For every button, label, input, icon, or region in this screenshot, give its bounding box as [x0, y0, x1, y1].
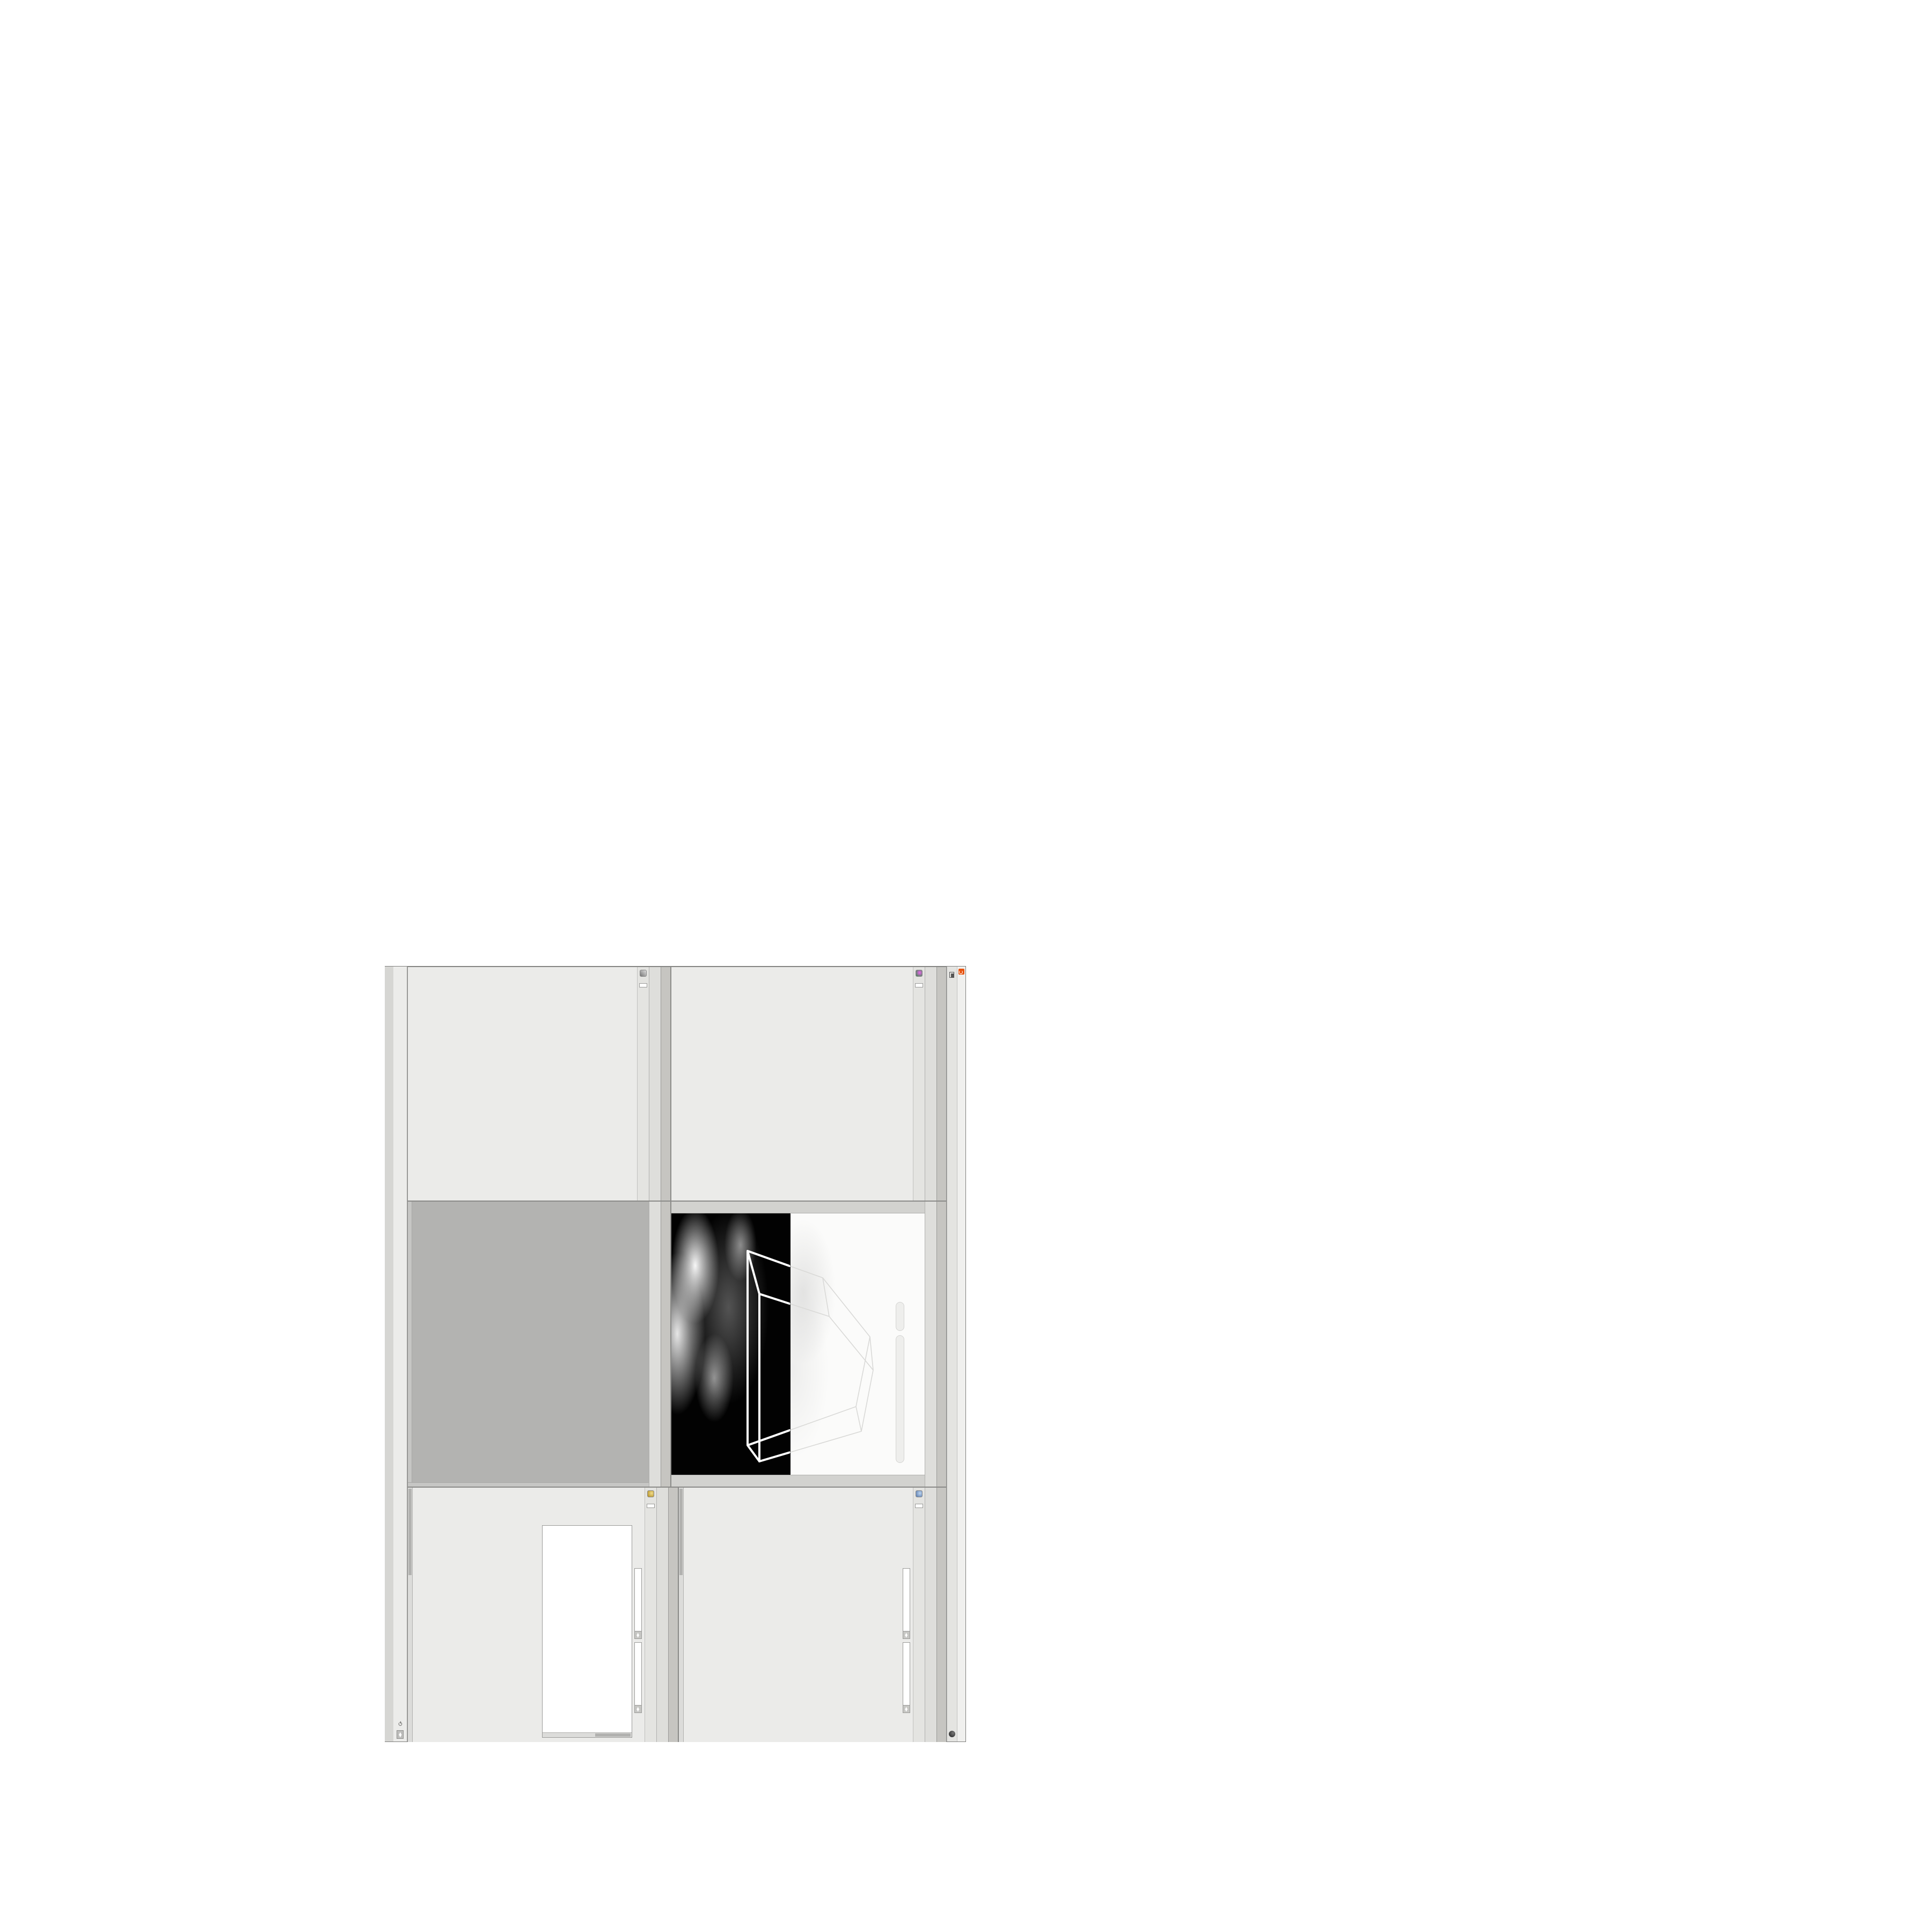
auto-update-icon: ⟲ [397, 1721, 404, 1726]
flip-node-header [913, 1488, 925, 1742]
houdini-window: ◀▶ ◀▶ [385, 966, 966, 1742]
wrangle-asset-row: ◀▶ ◀▶ [633, 1488, 643, 1742]
wrangle-pane-tabs [668, 1488, 678, 1742]
asset-name-spinner[interactable]: ◀▶ [903, 1631, 910, 1639]
asset-name-spinner[interactable]: ◀▶ [634, 1631, 642, 1639]
flip-pane-tabs [936, 1488, 946, 1742]
volviz-node-header [913, 967, 925, 1201]
quadrant-bottom-right [966, 966, 1547, 1742]
asset-path-spinner[interactable]: ◀▶ [634, 1706, 642, 1713]
pane-volume-visualization [671, 967, 947, 1201]
switch-node-header [637, 967, 649, 1201]
volume-wrangle-icon [647, 1490, 654, 1497]
pane-network-editor [407, 1201, 671, 1487]
quadrant-top-left [385, 190, 966, 966]
kaleidoscope-stage: ◀▶ ◀▶ [0, 0, 1932, 1932]
viewport-right-toolbar [671, 1475, 925, 1487]
flip-asset-row: ◀▶ ◀▶ [902, 1488, 911, 1742]
quadrant-top-right [966, 190, 1547, 966]
flip-source-icon [916, 1490, 923, 1497]
pane-scene-viewport [671, 1201, 947, 1487]
auto-update-spinner[interactable]: ◀▶ [397, 1730, 404, 1739]
node-name-field[interactable] [639, 983, 647, 987]
asset-path-field[interactable] [903, 1642, 910, 1706]
network-hscrollbar[interactable] [408, 1202, 412, 1482]
status-bar: ⟲ ◀▶ [393, 967, 407, 1741]
pane-switch [407, 967, 671, 1201]
network-canvas[interactable] [408, 1202, 649, 1487]
viewport-canvas[interactable] [671, 1213, 925, 1475]
asset-name-field[interactable] [903, 1568, 910, 1631]
menu-bar [947, 967, 957, 1741]
node-name-field[interactable] [647, 1504, 655, 1508]
switch-parameters [408, 967, 636, 1201]
viewport-pane-tabs [936, 1202, 946, 1487]
vex-code-editor[interactable] [542, 1525, 632, 1738]
desktop-grid-icon [950, 972, 955, 978]
pane-flip-source: ◀▶ ◀▶ [678, 1487, 947, 1742]
pane-volume-wrangle: ◀▶ ◀▶ [407, 1487, 678, 1742]
switch-breadcrumb-row [649, 967, 661, 1201]
houdini-window-rotated: ◀▶ ◀▶ [385, 966, 966, 1742]
asset-path-spinner[interactable]: ◀▶ [903, 1706, 910, 1713]
flip-hscrollbar[interactable] [679, 1488, 684, 1742]
code-vscrollbar[interactable] [543, 1732, 632, 1737]
switch-pane-tabs [661, 967, 670, 1201]
volviz-breadcrumb-row [925, 967, 936, 1201]
wrangle-breadcrumb-row [656, 1488, 668, 1742]
window-bottom-edge [385, 967, 393, 1741]
title-bar [957, 967, 965, 1741]
camera-pill[interactable] [896, 1335, 904, 1463]
node-graph [408, 1202, 649, 1483]
wireframe-hull [671, 1213, 925, 1475]
viewport-breadcrumb-row [925, 1202, 936, 1487]
asset-name-field[interactable] [634, 1568, 642, 1631]
ortho-view-pill[interactable] [896, 1302, 904, 1331]
wrangle-node-header [645, 1488, 656, 1742]
wrangle-hscrollbar[interactable] [408, 1488, 413, 1742]
volviz-parameters [671, 967, 912, 1201]
flip-breadcrumb-row [925, 1488, 936, 1742]
network-breadcrumb-row [649, 1202, 661, 1487]
quadrant-bottom-left: ◀▶ ◀▶ [385, 966, 966, 1742]
node-name-field[interactable] [915, 1504, 923, 1508]
viewport-left-toolbar [671, 1202, 925, 1213]
render-menu-icon[interactable] [949, 1731, 955, 1737]
network-vscrollbar[interactable] [408, 1482, 649, 1487]
volume-visualization-icon [916, 970, 923, 977]
node-name-field[interactable] [915, 983, 923, 987]
switch-icon [640, 970, 647, 977]
network-pane-tabs [661, 1202, 670, 1487]
asset-path-field[interactable] [634, 1642, 642, 1706]
volviz-pane-tabs [936, 967, 946, 1201]
houdini-logo-icon [958, 969, 964, 975]
